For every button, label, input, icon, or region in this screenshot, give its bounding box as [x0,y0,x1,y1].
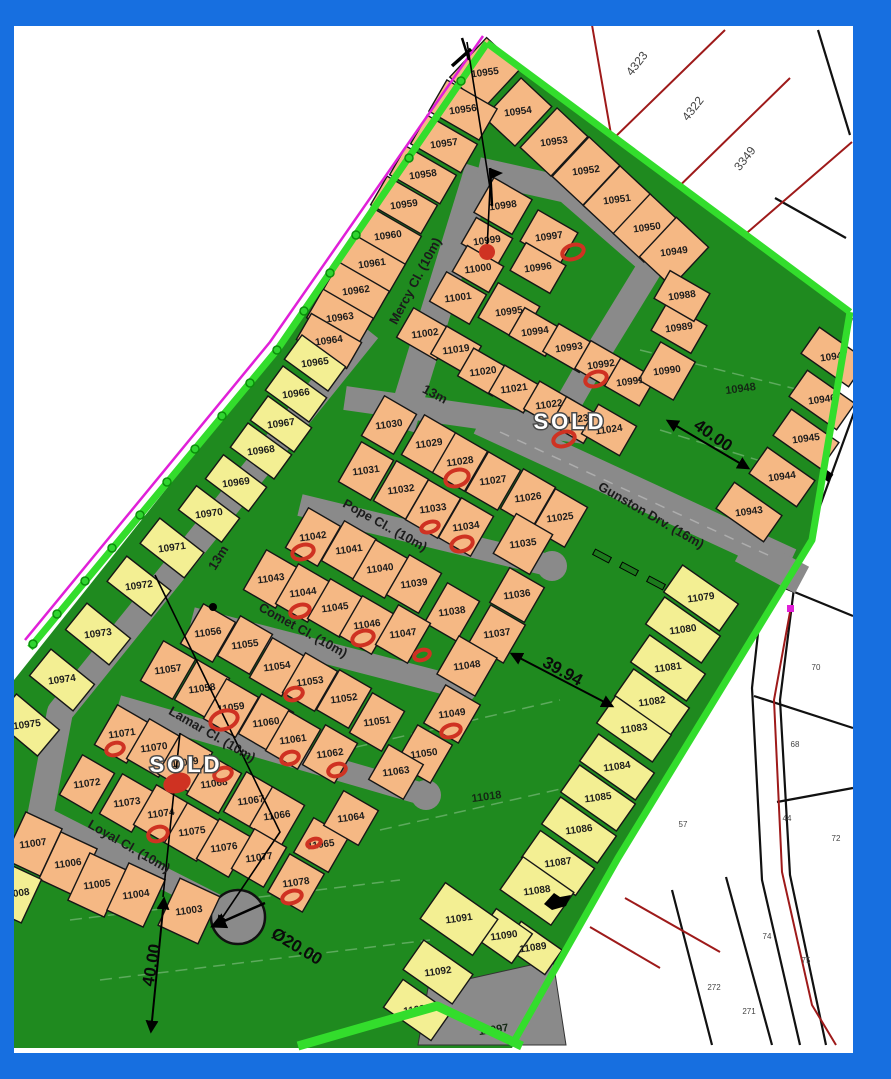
outside-parcel-label: 44 [783,814,792,823]
survey-peg [326,269,334,277]
survey-dot-icon [209,603,217,611]
outside-parcel-label: 74 [763,932,772,941]
outside-parcel-label: 272 [707,983,721,992]
outside-parcel-label: 75 [802,956,811,965]
outside-parcel-label: 68 [791,740,800,749]
survey-peg [81,577,89,585]
outside-parcel-label: 70 [812,663,821,672]
frame-bottom [0,1053,891,1079]
sold-overlay-label: SOLD [149,752,222,777]
survey-peg [53,610,61,618]
survey-peg [300,307,308,315]
survey-peg [29,640,37,648]
frame-right [853,0,891,1079]
survey-peg [108,544,116,552]
outside-parcel-label: 72 [832,834,841,843]
frame-left [0,0,14,1079]
survey-peg [246,379,254,387]
survey-peg [163,478,171,486]
survey-peg [457,77,465,85]
cul-de-sac-bulb [537,551,567,581]
cul-de-sac-bulb [411,780,441,810]
survey-peg [136,511,144,519]
survey-peg [352,231,360,239]
survey-peg [405,154,413,162]
subdivision-map: 4323432233497068445772747527227110955109… [0,0,891,1079]
magenta-marker [787,605,794,612]
survey-peg [191,445,199,453]
frame-top [0,0,891,26]
sold-overlay-label: SOLD [533,409,606,434]
outside-parcel-label: 57 [679,820,688,829]
survey-peg [273,346,281,354]
cadastral-plan-canvas: 4323432233497068445772747527227110955109… [0,0,891,1079]
survey-peg [218,412,226,420]
outside-parcel-label: 271 [742,1007,756,1016]
